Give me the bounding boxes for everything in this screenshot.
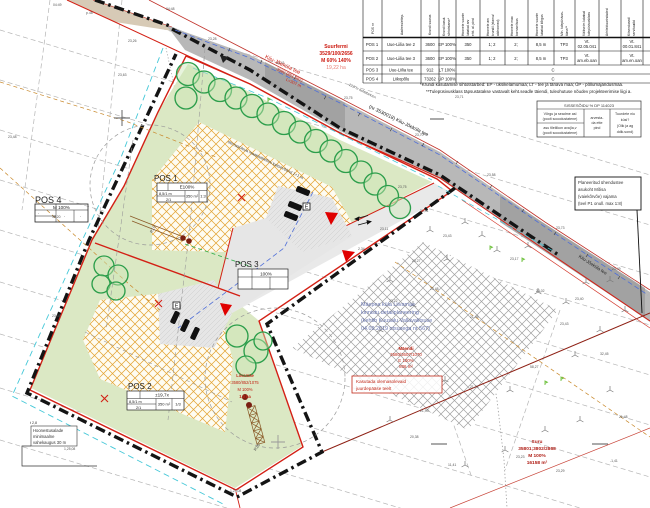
svg-text:23,58: 23,58	[487, 173, 496, 177]
svg-text:350: 350	[465, 42, 473, 47]
svg-text:Arhitektuurinduded: Arhitektuurinduded	[605, 8, 609, 36]
svg-text:asukoht Mõisa: asukoht Mõisa	[578, 187, 606, 192]
svg-text:POS 3: POS 3	[235, 260, 259, 269]
svg-text:M 100%: M 100%	[53, 205, 70, 210]
svg-text:23,11: 23,11	[380, 227, 388, 231]
svg-text:21,93: 21,93	[420, 409, 429, 413]
svg-text:EP 100%: EP 100%	[438, 56, 456, 61]
svg-text:-: -	[38, 212, 39, 216]
svg-text:19,22 ha: 19,22 ha	[326, 65, 346, 71]
svg-text:23,49: 23,49	[612, 267, 621, 271]
svg-text:korruselisus: korruselisus	[515, 18, 519, 36]
svg-text:Uue-Liilia tee 3: Uue-Liilia tee 3	[387, 56, 416, 61]
svg-text:tulepüsivusklass: tulepüsivusklass	[587, 12, 591, 36]
svg-text:23,27: 23,27	[412, 259, 421, 263]
svg-text:Liikopõlu: Liikopõlu	[393, 77, 410, 82]
svg-text:Liivamäe: Liivamäe	[236, 373, 254, 378]
svg-text:TP3: TP3	[560, 56, 568, 61]
svg-text:23,26: 23,26	[128, 39, 137, 43]
svg-text:32,45: 32,45	[600, 352, 609, 356]
svg-text:2/1: 2/1	[136, 406, 141, 410]
svg-text:1,25,08: 1,25,08	[64, 447, 75, 451]
svg-text:1; 2: 1; 2	[489, 56, 497, 61]
svg-text:20,38: 20,38	[410, 435, 419, 439]
svg-text:23,43: 23,43	[443, 234, 452, 238]
svg-text:E100%: E100%	[180, 185, 195, 190]
svg-text:arvesta-: arvesta-	[591, 116, 605, 120]
svg-text:Suurfermi: Suurfermi	[324, 44, 348, 50]
svg-text:p.48: p.48	[86, 11, 93, 15]
svg-text:23,29: 23,29	[556, 469, 565, 473]
svg-text:23,23: 23,23	[516, 455, 525, 459]
svg-text:(vaiekõrvõe) vajama: (vaiekõrvõe) vajama	[578, 194, 617, 199]
svg-text:C: C	[551, 77, 554, 82]
svg-text:abihooned): abihooned)	[496, 20, 500, 37]
svg-text:ÜP 100%: ÜP 100%	[438, 77, 456, 82]
svg-text:Võrgu ja seadme asl: Võrgu ja seadme asl	[544, 112, 577, 116]
svg-text:350 m²: 350 m²	[158, 402, 171, 407]
svg-text:1:3: 1:3	[200, 194, 206, 199]
svg-text:t 2,8: t 2,8	[30, 421, 37, 425]
svg-text:23,40: 23,40	[575, 297, 584, 301]
svg-text:klass**: klass**	[565, 25, 569, 36]
svg-text:1,0 ha: 1,0 ha	[239, 394, 251, 399]
svg-text:Hoonestusalade: Hoonestusalade	[33, 428, 64, 433]
svg-text:Kitsendused/: Kitsendused/	[627, 17, 631, 36]
svg-text:Hoonete arv: Hoonete arv	[486, 18, 490, 36]
svg-text:E: E	[305, 205, 309, 211]
svg-text:±19,7x: ±19,7x	[155, 393, 169, 398]
svg-text:100%: 100%	[260, 272, 272, 277]
svg-text:3600: 3600	[425, 56, 435, 61]
svg-text:ddik.sond): ddik.sond)	[617, 130, 634, 134]
svg-text:Tuurdete niu: Tuurdete niu	[615, 112, 635, 116]
svg-text:1; 2: 1; 2	[489, 42, 497, 47]
svg-text:POS nr: POS nr	[371, 22, 375, 34]
svg-text:Mäepea küla Liivamäe: Mäepea küla Liivamäe	[361, 302, 415, 308]
svg-text:Uue-Liilia tee 2: Uue-Liilia tee 2	[387, 42, 416, 47]
svg-text:23,08: 23,08	[52, 314, 61, 318]
svg-text:pind: pind	[594, 126, 601, 130]
svg-text:TP3: TP3	[560, 42, 568, 47]
svg-text:POS 3: POS 3	[366, 68, 379, 73]
svg-text:POS 2: POS 2	[366, 56, 379, 61]
svg-text:(poolt sooodustatene): (poolt sooodustatene)	[543, 117, 578, 121]
svg-text:Krundi suurus: Krundi suurus	[428, 14, 432, 35]
svg-text:38,20: 38,20	[52, 215, 61, 219]
svg-text:23,17: 23,17	[510, 257, 519, 261]
svg-text:minimaalne: minimaalne	[33, 434, 55, 439]
svg-text:POS 1: POS 1	[154, 174, 178, 183]
svg-text:3580/852/1075: 3580/852/1075	[231, 380, 259, 385]
svg-text:23,75: 23,75	[398, 185, 407, 189]
svg-text:8,5 m: 8,5 m	[536, 42, 547, 47]
svg-text:asu tlleilikon ava(la,v: asu tlleilikon ava(la,v	[543, 126, 576, 130]
svg-text:POS 4: POS 4	[366, 77, 379, 82]
svg-text:E: E	[175, 304, 179, 310]
svg-text:1,23,08: 1,23,08	[230, 489, 241, 493]
svg-text:806 m²: 806 m²	[399, 364, 413, 369]
svg-text:23,48: 23,48	[430, 287, 439, 291]
svg-text:58,27: 58,27	[530, 365, 539, 369]
svg-text:kinnistu detailplaneering: kinnistu detailplaneering	[361, 310, 419, 316]
svg-text:-: -	[64, 214, 65, 218]
svg-text:am.en.oan: am.en.oan	[622, 58, 642, 63]
svg-text:Hoonete suurim: Hoonete suurim	[461, 12, 465, 36]
svg-text:21,73: 21,73	[470, 385, 479, 389]
svg-text:3580/3607/1070: 3580/3607/1070	[390, 352, 422, 357]
svg-text:23,48: 23,48	[8, 135, 17, 139]
svg-text:lubatud arv: lubatud arv	[466, 19, 470, 36]
svg-text:POS 4: POS 4	[35, 195, 62, 205]
svg-text:LT 100%: LT 100%	[439, 68, 456, 73]
svg-text:Uue-Liilia tee: Uue-Liilia tee	[389, 68, 414, 73]
svg-text:23,71: 23,71	[455, 95, 464, 99]
svg-text:04.09.2019 otsusega nr 567): 04.09.2019 otsusega nr 567)	[361, 326, 430, 332]
svg-text:SISSESÕIDU % DP 114023: SISSESÕIDU % DP 114023	[564, 103, 615, 108]
svg-text:M 100%: M 100%	[528, 453, 546, 459]
svg-text:(teel P1 onull. max 1:8): (teel P1 onull. max 1:8)	[578, 201, 623, 206]
svg-text:Aadressiettep.: Aadressiettep.	[400, 14, 404, 35]
svg-text:3529/100/2656: 3529/100/2656	[319, 51, 353, 57]
svg-text:Kasutada olemasolevaid: Kasutada olemasolevaid	[356, 379, 406, 384]
svg-text:8,5 m: 8,5 m	[536, 56, 547, 61]
svg-text:2;: 2;	[514, 56, 518, 61]
svg-text:juurdepääse teelt: juurdepääse teelt	[355, 386, 392, 391]
svg-text:Krundi kasut.: Krundi kasut.	[442, 17, 446, 36]
svg-text:3600: 3600	[425, 42, 435, 47]
svg-text:M 100%: M 100%	[237, 387, 252, 392]
svg-text:21,46: 21,46	[470, 315, 479, 319]
svg-text:vahekaugus 30 m: vahekaugus 30 m	[33, 440, 67, 445]
svg-text:23,41: 23,41	[420, 209, 429, 213]
svg-text:(poolt sooodustatene): (poolt sooodustatene)	[543, 131, 578, 135]
svg-text:POS 2: POS 2	[128, 382, 152, 391]
svg-text:-: -	[80, 214, 81, 218]
svg-text:23,02: 23,02	[536, 289, 545, 293]
svg-text:*Krundi kasutamise sihtotstarb: *Krundi kasutamise sihtotstarbed: EP - ü…	[420, 82, 623, 87]
svg-text:912: 912	[427, 68, 435, 73]
svg-text:8,5/1 m: 8,5/1 m	[129, 400, 142, 404]
svg-text:sihtotstarve*: sihtotstarve*	[447, 17, 451, 36]
svg-text:Hoonete max: Hoonete max	[510, 16, 514, 36]
svg-text:Mäendi: Mäendi	[398, 346, 413, 351]
svg-text:am.eb.oan: am.eb.oan	[577, 58, 597, 63]
svg-text:02.05.041: 02.05.041	[578, 44, 597, 49]
svg-text:21,48: 21,48	[619, 415, 628, 419]
svg-text:2/1: 2/1	[166, 198, 171, 202]
svg-text:23,73: 23,73	[556, 226, 565, 230]
svg-text:küsi?: küsi?	[621, 118, 629, 122]
svg-text:servituudid: servituudid	[632, 20, 636, 36]
svg-text:8,5/1 m: 8,5/1 m	[159, 192, 172, 196]
svg-text:C: C	[551, 68, 554, 73]
svg-text:11,41: 11,41	[448, 463, 456, 467]
svg-text:(Olik ja ag: (Olik ja ag	[617, 124, 633, 128]
svg-text:1/3: 1/3	[175, 402, 181, 407]
svg-text:04:48: 04:48	[166, 7, 175, 11]
svg-text:lubatud kõrgus: lubatud kõrgus	[540, 14, 544, 36]
svg-text:M 60% 140%: M 60% 140%	[321, 58, 351, 64]
svg-text:Väikseim lubatud: Väikseim lubatud	[582, 11, 586, 36]
svg-text:da ette: da ette	[592, 121, 603, 125]
svg-text:Planeeritud ühendustee: Planeeritud ühendustee	[578, 180, 624, 185]
svg-text:35801;3802/2868: 35801;3802/2868	[518, 446, 556, 452]
svg-text:(kehtib Kuusalu Vallavalitsuse: (kehtib Kuusalu Vallavalitsuse	[361, 318, 432, 324]
svg-text:POS 1: POS 1	[366, 42, 379, 47]
svg-text:23,75: 23,75	[344, 96, 353, 100]
svg-text:2,34: 2,34	[358, 247, 365, 251]
svg-text:**Tulepüsivusklass täpsustatak: **Tulepüsivusklass täpsustatakse vastava…	[426, 89, 632, 94]
svg-text:2;: 2;	[514, 42, 518, 47]
svg-text:23,43: 23,43	[560, 322, 569, 326]
svg-text:Min. tulepüsivus-: Min. tulepüsivus-	[560, 11, 564, 36]
svg-text:23,63: 23,63	[118, 73, 127, 77]
svg-text:ehit. al. pind: ehit. al. pind	[471, 18, 475, 36]
svg-text:E 100%: E 100%	[398, 358, 413, 363]
svg-text:00.01.841: 00.01.841	[623, 44, 642, 49]
svg-text:Suru: Suru	[532, 439, 543, 445]
svg-text:Hoonete suurim: Hoonete suurim	[535, 12, 539, 36]
svg-text:350: 350	[465, 56, 473, 61]
svg-text:350 m²: 350 m²	[186, 194, 199, 199]
svg-text:EP 100%: EP 100%	[438, 42, 456, 47]
svg-text:-1,41: -1,41	[610, 459, 618, 463]
svg-text:16158 m²: 16158 m²	[527, 460, 548, 466]
svg-text:73262: 73262	[424, 77, 436, 82]
svg-text:23,28: 23,28	[208, 37, 217, 41]
svg-text:krundil (elamu/: krundil (elamu/	[491, 14, 495, 36]
svg-text:04:49: 04:49	[53, 3, 62, 7]
